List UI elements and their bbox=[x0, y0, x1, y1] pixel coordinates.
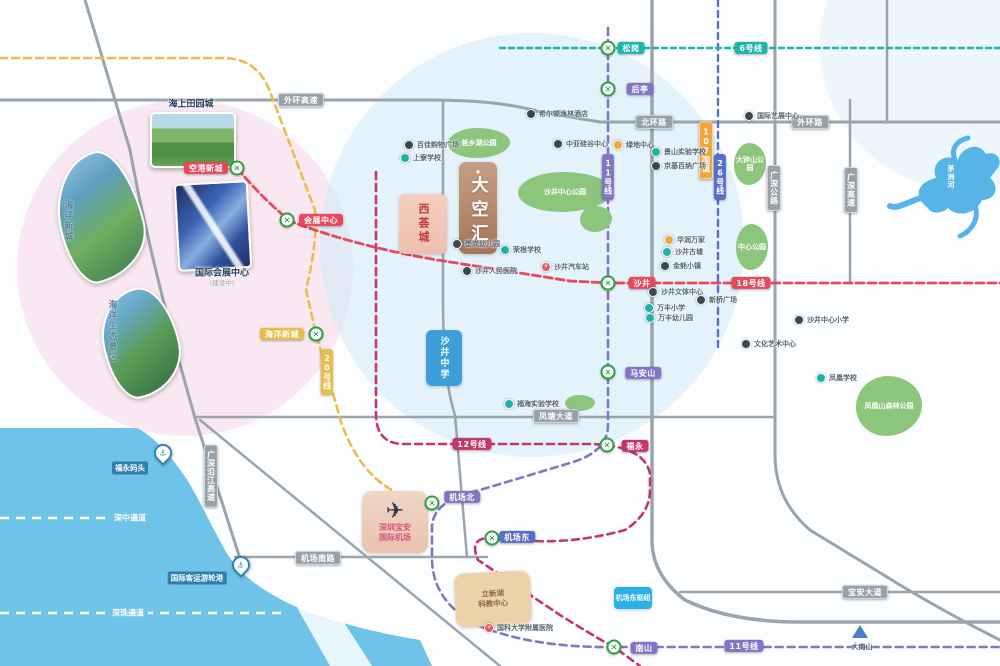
road-badge-广深公路: 广深公路 bbox=[767, 165, 781, 211]
poi-icon bbox=[404, 140, 414, 150]
poi-景山实验学校: 景山实验学校 bbox=[651, 147, 706, 157]
line-badge-12号线: 12号线 bbox=[452, 438, 491, 450]
photo-海洋新城 bbox=[44, 144, 157, 289]
port-label-国际客运游轮港: 国际客运游轮港 bbox=[168, 572, 227, 585]
poi-绿地中心: 绿地中心 bbox=[613, 140, 654, 150]
road-badge-北环路: 北环路 bbox=[635, 115, 673, 129]
poi-label: 万丰幼儿园 bbox=[658, 313, 693, 323]
caption-海洋新城: 海洋新城 bbox=[62, 200, 74, 242]
tunnel-label-深中通道: 深中通道 bbox=[110, 512, 150, 525]
school-icon bbox=[662, 247, 672, 257]
line-badge-6号线: 6号线 bbox=[734, 42, 767, 54]
poi-label: 京基百纳广场 bbox=[664, 161, 706, 171]
school-icon bbox=[504, 399, 514, 409]
poi-label: 壆岗幼儿园 bbox=[465, 239, 500, 249]
station-海洋新城: × bbox=[309, 327, 324, 342]
river-label: 茅洲河 bbox=[946, 165, 956, 189]
poi-label: 希尔顿逸林酒店 bbox=[539, 109, 588, 119]
line-badge-11号线: 11号线 bbox=[602, 154, 614, 200]
block-label: 国际机场 bbox=[379, 533, 411, 543]
block-label: 深圳宝安 bbox=[379, 523, 411, 533]
poi-希尔顿逸林酒店: 希尔顿逸林酒店 bbox=[526, 109, 588, 119]
station-badge-福永: 福永 bbox=[622, 440, 649, 452]
poi-icon bbox=[744, 111, 754, 121]
poi-华润万家: 华润万家 bbox=[664, 235, 705, 245]
station-机场东: × bbox=[485, 531, 500, 546]
poi-label: 景山实验学校 bbox=[664, 147, 706, 157]
poi-label: 文化艺术中心 bbox=[754, 339, 796, 349]
poi-文化艺术中心: 文化艺术中心 bbox=[741, 339, 796, 349]
port-pin-福永码头: ⚓ bbox=[150, 440, 175, 465]
poi-金蚝小镇: 金蚝小镇 bbox=[660, 261, 701, 271]
poi-国科大学附属医院: +国科大学附属医院 bbox=[484, 623, 553, 633]
poi-icon bbox=[660, 261, 670, 271]
station-badge-机场东: 机场东 bbox=[499, 531, 535, 543]
poi-icon bbox=[696, 295, 706, 305]
road-badge-广深沿江高速: 广深沿江高速 bbox=[204, 445, 218, 508]
poi-icon bbox=[526, 109, 536, 119]
block-label: 沙井中学 bbox=[438, 336, 451, 380]
station-badge-松岗: 松岗 bbox=[618, 42, 645, 54]
poi-label: 金蚝小镇 bbox=[673, 261, 701, 271]
poi-百佳购物广场: 百佳购物广场 bbox=[404, 140, 459, 150]
port-pin-国际客运游轮港: ⚓ bbox=[228, 552, 253, 577]
poi-label: 荣根学校 bbox=[513, 245, 541, 255]
station-空港新城: × bbox=[230, 161, 245, 176]
block-沙井中学: 沙井中学 bbox=[426, 330, 462, 386]
poi-icon bbox=[452, 239, 462, 249]
port-label-福永码头: 福永码头 bbox=[112, 462, 148, 475]
airplane-icon: ✈ bbox=[386, 501, 404, 523]
poi-国际艺展中心: 国际艺展中心 bbox=[744, 111, 799, 121]
school-icon bbox=[400, 153, 410, 163]
park-凤凰山森林公园: 凤凰山森林公园 bbox=[856, 376, 922, 436]
block-label: 科教中心 bbox=[478, 598, 508, 609]
road-badge-机场南路: 机场南路 bbox=[295, 551, 341, 565]
station-南山: × bbox=[607, 640, 622, 655]
poi-icon bbox=[741, 339, 751, 349]
poi-icon bbox=[462, 266, 472, 276]
road-badge-广深高速: 广深高速 bbox=[844, 167, 858, 213]
caption-海洋生态景区: 海洋生态景区 bbox=[106, 300, 118, 363]
road-badge-外环高速: 外环高速 bbox=[278, 93, 324, 107]
poi-label: 国际艺展中心 bbox=[757, 111, 799, 121]
poi-label: 上寮学校 bbox=[413, 153, 441, 163]
poi-壆岗幼儿园: 壆岗幼儿园 bbox=[452, 239, 500, 249]
poi-沙井古墟: 沙井古墟 bbox=[662, 247, 703, 257]
line-badge-26号线: 26号线 bbox=[714, 154, 726, 200]
hospital-icon: + bbox=[541, 262, 551, 272]
park-中心公园: 中心公园 bbox=[736, 224, 768, 270]
poi-icon bbox=[648, 287, 658, 297]
park-2 bbox=[580, 206, 612, 232]
school-icon bbox=[651, 147, 661, 157]
block-label: 西荟城 bbox=[415, 203, 431, 245]
ship-anchor-icon: ⚓ bbox=[237, 561, 244, 569]
station-马安山: × bbox=[601, 365, 616, 380]
school-icon bbox=[644, 303, 654, 313]
poi-万丰幼儿园: 万丰幼儿园 bbox=[645, 313, 693, 323]
map-overlay: ◆ 大空汇 蚝乡湖公园沙井中心公园大钟山公园中心公园凤凰山森林公园西荟城沙井中学… bbox=[0, 0, 1000, 666]
poi-icon bbox=[794, 315, 804, 325]
poi-icon bbox=[664, 235, 674, 245]
station-后亭: × bbox=[601, 82, 616, 97]
block-label: 机场东枢纽 bbox=[616, 593, 651, 603]
poi-label: 绿地中心 bbox=[626, 140, 654, 150]
station-松岗: × bbox=[601, 41, 616, 56]
park-label: 凤凰山森林公园 bbox=[865, 402, 914, 410]
hospital-icon: + bbox=[484, 623, 494, 633]
station-福永: × bbox=[600, 438, 615, 453]
project-name: 大空汇 bbox=[466, 176, 491, 248]
poi-label: 百佳购物广场 bbox=[417, 140, 459, 150]
station-会展中心: × bbox=[280, 213, 295, 228]
station-badge-海洋新城: 海洋新城 bbox=[260, 328, 304, 340]
photo-国际会展中心 bbox=[174, 180, 253, 272]
poi-label: 凤凰学校 bbox=[829, 373, 857, 383]
park-label: 大钟山公园 bbox=[734, 156, 766, 173]
line-badge-18号线: 18号线 bbox=[731, 277, 770, 289]
mountain-icon bbox=[852, 625, 868, 638]
poi-label: 新桥广场 bbox=[709, 295, 737, 305]
photo-海上田园城 bbox=[150, 112, 236, 168]
poi-label: 沙井古墟 bbox=[675, 247, 703, 257]
block-机场东枢纽: 机场东枢纽 bbox=[614, 587, 652, 609]
caption-海上田园城: 海上田园城 bbox=[168, 97, 213, 110]
poi-icon bbox=[553, 139, 563, 149]
park-大钟山公园: 大钟山公园 bbox=[734, 143, 766, 185]
park-label: 中心公园 bbox=[738, 243, 766, 251]
block-立新湖: 立新湖科教中心 bbox=[454, 570, 533, 628]
poi-荣根学校: 荣根学校 bbox=[500, 245, 541, 255]
station-badge-南山: 南山 bbox=[631, 642, 658, 654]
line-badge-20号线: 20号线 bbox=[321, 349, 333, 395]
poi-icon bbox=[613, 140, 623, 150]
mountain-label: 大南山 bbox=[852, 642, 873, 652]
caption-sub: (建设中) bbox=[210, 277, 235, 287]
station-机场北: × bbox=[425, 496, 440, 511]
school-icon bbox=[500, 245, 510, 255]
road-badge-宝安大道: 宝安大道 bbox=[842, 585, 888, 599]
station-沙井: × bbox=[601, 276, 616, 291]
poi-label: 国科大学附属医院 bbox=[497, 623, 553, 633]
station-badge-空港新城: 空港新城 bbox=[184, 162, 228, 174]
poi-label: 万丰小学 bbox=[657, 303, 685, 313]
road-badge-凤塘大道: 凤塘大道 bbox=[533, 409, 579, 423]
logo-star-icon: ◆ bbox=[476, 169, 480, 175]
poi-凤凰学校: 凤凰学校 bbox=[816, 373, 857, 383]
station-badge-马安山: 马安山 bbox=[625, 367, 661, 379]
poi-label: 福海实验学校 bbox=[517, 399, 559, 409]
station-badge-后亭: 后亭 bbox=[627, 83, 654, 95]
block-西荟城: 西荟城 bbox=[399, 194, 447, 254]
poi-label: 沙井人民医院 bbox=[475, 266, 517, 276]
poi-上寮学校: 上寮学校 bbox=[400, 153, 441, 163]
poi-沙井人民医院: 沙井人民医院 bbox=[462, 266, 517, 276]
park-label: 沙井中心公园 bbox=[544, 188, 586, 196]
park-label: 蚝乡湖公园 bbox=[462, 139, 497, 147]
line-badge-11号线: 11号线 bbox=[724, 640, 763, 652]
poi-京基百纳广场: 京基百纳广场 bbox=[651, 161, 706, 171]
poi-沙井汽车站: +沙井汽车站 bbox=[541, 262, 589, 272]
block-深圳宝安: ✈深圳宝安国际机场 bbox=[362, 491, 428, 553]
tunnel-label-深珠通道: 深珠通道 bbox=[108, 607, 148, 620]
poi-新桥广场: 新桥广场 bbox=[696, 295, 737, 305]
location-map: ◆ 大空汇 蚝乡湖公园沙井中心公园大钟山公园中心公园凤凰山森林公园西荟城沙井中学… bbox=[0, 0, 1000, 666]
station-badge-会展中心: 会展中心 bbox=[299, 214, 343, 226]
poi-万丰小学: 万丰小学 bbox=[644, 303, 685, 313]
poi-福海实验学校: 福海实验学校 bbox=[504, 399, 559, 409]
school-icon bbox=[816, 373, 826, 383]
poi-label: 中亚硅谷中心 bbox=[566, 139, 608, 149]
school-icon bbox=[645, 313, 655, 323]
ship-anchor-icon: ⚓ bbox=[159, 449, 166, 457]
poi-icon bbox=[651, 161, 661, 171]
poi-label: 华润万家 bbox=[677, 235, 705, 245]
poi-沙井文体中心: 沙井文体中心 bbox=[648, 287, 703, 297]
poi-label: 沙井中心小学 bbox=[807, 315, 849, 325]
poi-沙井中心小学: 沙井中心小学 bbox=[794, 315, 849, 325]
station-badge-机场北: 机场北 bbox=[444, 491, 480, 503]
poi-label: 沙井汽车站 bbox=[554, 262, 589, 272]
poi-中亚硅谷中心: 中亚硅谷中心 bbox=[553, 139, 608, 149]
